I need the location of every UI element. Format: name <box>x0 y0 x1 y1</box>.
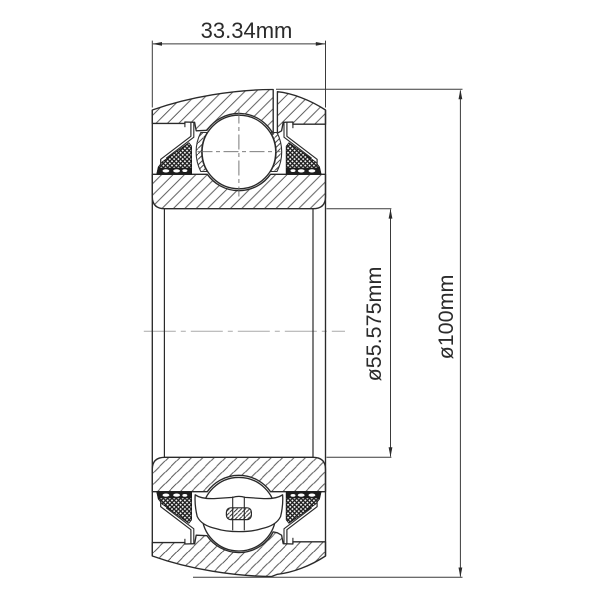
svg-text:33.34mm: 33.34mm <box>201 18 293 43</box>
svg-text:ø55.575mm: ø55.575mm <box>362 267 386 382</box>
svg-text:ø100mm: ø100mm <box>434 275 458 360</box>
